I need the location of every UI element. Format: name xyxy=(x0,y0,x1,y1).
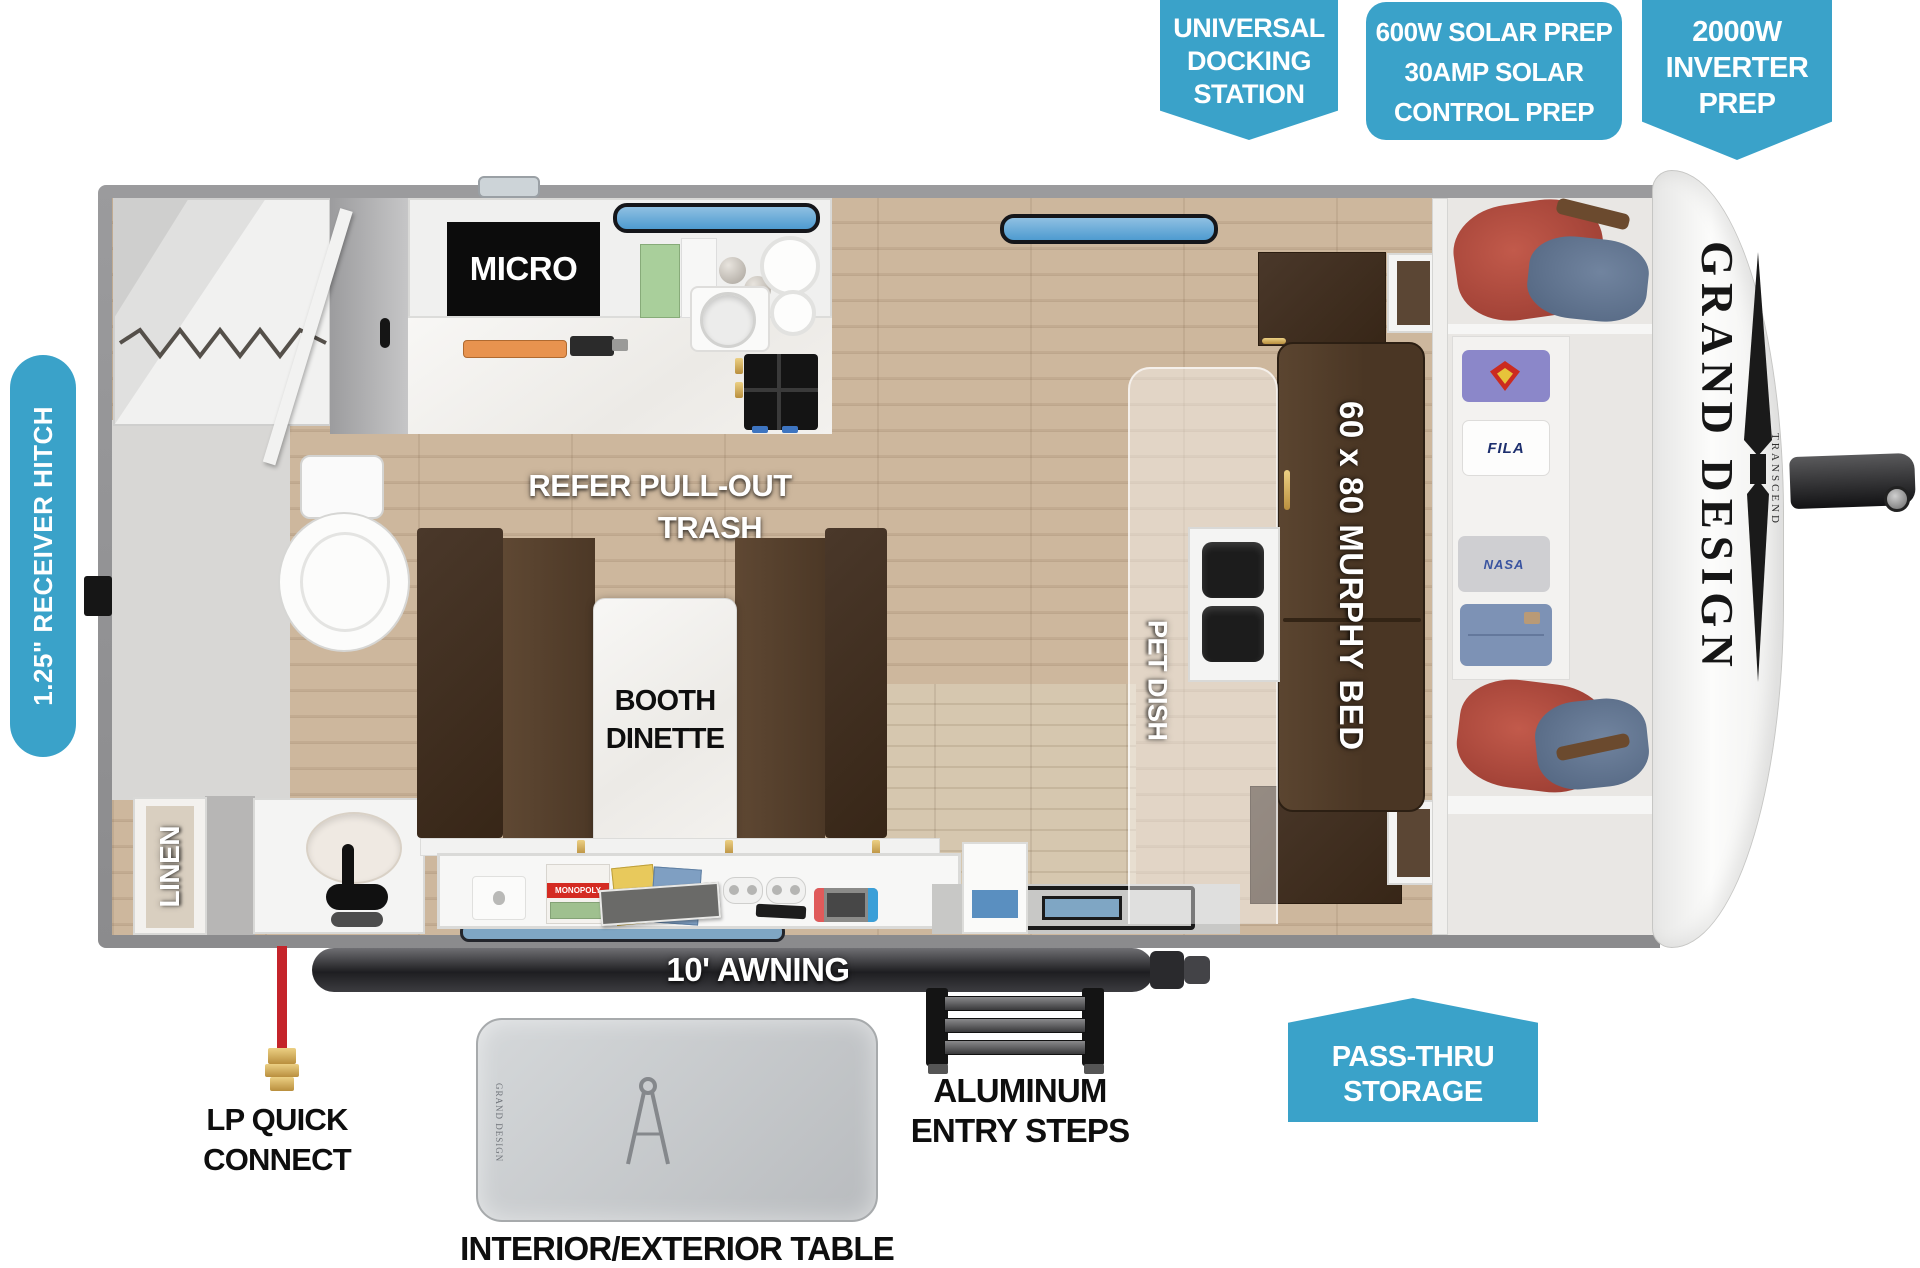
awning-end-cap xyxy=(1150,951,1184,989)
plate-large xyxy=(760,236,820,296)
controller-2-buttons-icon xyxy=(790,885,800,895)
kitchen-window xyxy=(613,203,820,233)
awning-end-knob xyxy=(1184,956,1210,984)
wardrobe-wall xyxy=(1432,198,1448,935)
bedroom-window xyxy=(1000,214,1218,244)
cereal-box-green xyxy=(640,244,680,318)
booth-label-line2: DINETTE xyxy=(594,723,736,756)
callout-inverter-prep: 2000W INVERTER PREP xyxy=(1642,0,1832,160)
superman-shirt xyxy=(1462,350,1550,402)
bathroom-floor xyxy=(112,420,290,800)
pass-thru-line2: STORAGE xyxy=(1288,1075,1538,1110)
murphy-bed-label: 60 x 80 MURPHY BED xyxy=(1332,401,1370,751)
orange-tray xyxy=(463,340,567,358)
inverter-line3: PREP xyxy=(1642,86,1832,122)
booth-label-line1: BOOTH xyxy=(594,685,736,718)
hitch-jack-wheel xyxy=(1884,486,1910,512)
overhead-cabinet xyxy=(1258,252,1386,346)
linen-label: LINEN xyxy=(154,826,186,908)
jeans-patch xyxy=(1524,612,1540,624)
dinette-table: BOOTH DINETTE xyxy=(593,598,737,840)
lp-hose xyxy=(277,946,287,1050)
docking-line3: STATION xyxy=(1160,78,1338,111)
callout-solar-prep: 600W SOLAR PREP 30AMP SOLAR CONTROL PREP xyxy=(1366,2,1622,140)
microwave-label: MICRO xyxy=(470,250,578,288)
stove-knob-1 xyxy=(735,358,743,374)
pet-bowl-1 xyxy=(1202,542,1264,598)
controller-1 xyxy=(723,877,763,904)
nasa-logo: NASA xyxy=(1484,557,1525,572)
entry-steps xyxy=(926,988,1110,1074)
toilet-tank xyxy=(300,455,384,519)
roof-vent xyxy=(478,176,540,198)
controller-1-buttons-icon xyxy=(747,885,757,895)
table-label: INTERIOR/EXTERIOR TABLE xyxy=(377,1230,977,1268)
portable-table: GRAND DESIGN xyxy=(476,1018,878,1222)
awning-label-wrap: 10' AWNING xyxy=(558,950,958,990)
toilet-seat xyxy=(300,532,390,632)
bath-sink xyxy=(306,812,402,884)
dinette-bench-left xyxy=(503,538,595,838)
lp-label-line1: LP QUICK xyxy=(177,1102,377,1138)
fila-shirt: FILA xyxy=(1462,420,1550,476)
callout-pass-thru: PASS-THRU STORAGE xyxy=(1288,998,1538,1122)
lp-fitting-tip xyxy=(270,1077,294,1091)
step-tread-1 xyxy=(944,996,1086,1011)
dinette-bench-right xyxy=(735,538,825,838)
overhead-cabinet-handle xyxy=(1262,338,1286,344)
joycon-red xyxy=(814,888,824,922)
lp-label-line2: CONNECT xyxy=(177,1142,377,1178)
microwave: MICRO xyxy=(447,222,600,316)
inverter-line2: INVERTER xyxy=(1642,50,1832,86)
dinette-bench-back-right xyxy=(825,528,887,838)
stove-knob-2 xyxy=(735,382,743,398)
plate-small xyxy=(770,290,816,336)
jeans-seam xyxy=(1468,634,1544,636)
controller-2 xyxy=(766,877,806,904)
pass-thru-line1: PASS-THRU xyxy=(1288,1040,1538,1075)
table-brand-wrap: GRAND DESIGN xyxy=(490,1078,508,1168)
receiver-hitch-label: 1.25" RECEIVER HITCH xyxy=(28,406,59,706)
lp-fitting-mid xyxy=(265,1064,299,1077)
shower xyxy=(113,198,331,426)
controller-2-dpad-icon xyxy=(772,885,782,895)
bedside-mirror-top xyxy=(1397,261,1430,325)
callout-receiver-hitch: 1.25" RECEIVER HITCH xyxy=(10,355,76,757)
step-tread-2 xyxy=(944,1018,1086,1033)
brand-model: TRANSCEND xyxy=(1769,433,1781,526)
compass-icon xyxy=(616,1072,680,1172)
wardrobe-bottom-shelf xyxy=(1448,796,1660,814)
inverter-line1: 2000W xyxy=(1642,14,1832,50)
brand-logo-wrap: GRAND DESIGN xyxy=(1692,232,1742,682)
brand-logo: GRAND DESIGN xyxy=(1691,241,1743,674)
brand-model-wrap: TRANSCEND xyxy=(1766,380,1784,580)
bedside-mirror-bottom xyxy=(1397,809,1430,877)
lp-fitting-top xyxy=(268,1048,296,1064)
joycon-blue xyxy=(868,888,878,922)
murphy-bed-label-wrap: 60 x 80 MURPHY BED xyxy=(1277,366,1425,786)
nintendo-switch xyxy=(814,888,878,922)
switch-screen xyxy=(827,893,865,917)
solar-line1: 600W SOLAR PREP xyxy=(1366,12,1622,52)
city-water-inlet xyxy=(84,576,112,616)
pet-dish-label-wrap: PET DISH xyxy=(1128,560,1186,800)
awning-label: 10' AWNING xyxy=(666,951,849,989)
laptop xyxy=(472,876,526,920)
entry-door-pane xyxy=(1042,896,1122,920)
docking-line2: DOCKING xyxy=(1160,45,1338,78)
bath-faucet-shadow xyxy=(331,912,383,927)
solar-line3: CONTROL PREP xyxy=(1366,92,1622,132)
monopoly-board xyxy=(550,902,606,919)
folded-jeans xyxy=(1460,604,1552,666)
stove-burner-blue-1 xyxy=(752,426,768,433)
tv-remote xyxy=(756,904,807,920)
steps-label-line2: ENTRY STEPS xyxy=(870,1112,1170,1150)
wardrobe-shelf-divider xyxy=(1448,324,1660,334)
stove xyxy=(744,354,818,430)
table-brand: GRAND DESIGN xyxy=(494,1083,504,1162)
steps-label-line1: ALUMINUM xyxy=(870,1072,1170,1110)
controller-1-dpad-icon xyxy=(729,885,739,895)
nasa-shirt: NASA xyxy=(1458,536,1550,592)
stove-burner-blue-2 xyxy=(782,426,798,433)
media-cabinet xyxy=(962,842,1028,934)
rv-floorplan-diagram: LINEN MICRO REFER PULL-OUT TRASH BOOTH D… xyxy=(0,0,1920,1268)
bath-door-handle xyxy=(380,318,390,348)
kitchen-sink-basin xyxy=(700,292,756,348)
step-tread-3 xyxy=(944,1040,1086,1055)
apple-logo-icon xyxy=(493,891,505,905)
utensil-tray xyxy=(570,336,614,356)
canister-1 xyxy=(719,257,746,284)
fila-logo: FILA xyxy=(1487,440,1524,457)
pet-bowl-2 xyxy=(1202,606,1264,662)
pet-dish-label: PET DISH xyxy=(1142,620,1173,741)
media-screen xyxy=(972,890,1018,918)
linen-divider-wall xyxy=(205,796,255,935)
utensil-handle xyxy=(612,339,628,351)
docking-line1: UNIVERSAL xyxy=(1160,12,1338,45)
bath-faucet-base xyxy=(326,884,388,910)
solar-line2: 30AMP SOLAR xyxy=(1366,52,1622,92)
callout-docking-station: UNIVERSAL DOCKING STATION xyxy=(1160,0,1338,140)
linen-cabinet-inner: LINEN xyxy=(146,806,194,928)
dinette-bench-back-left xyxy=(417,528,503,838)
refer-label-line1: REFER PULL-OUT xyxy=(490,468,830,504)
monopoly-label: MONOPOLY xyxy=(555,886,601,895)
